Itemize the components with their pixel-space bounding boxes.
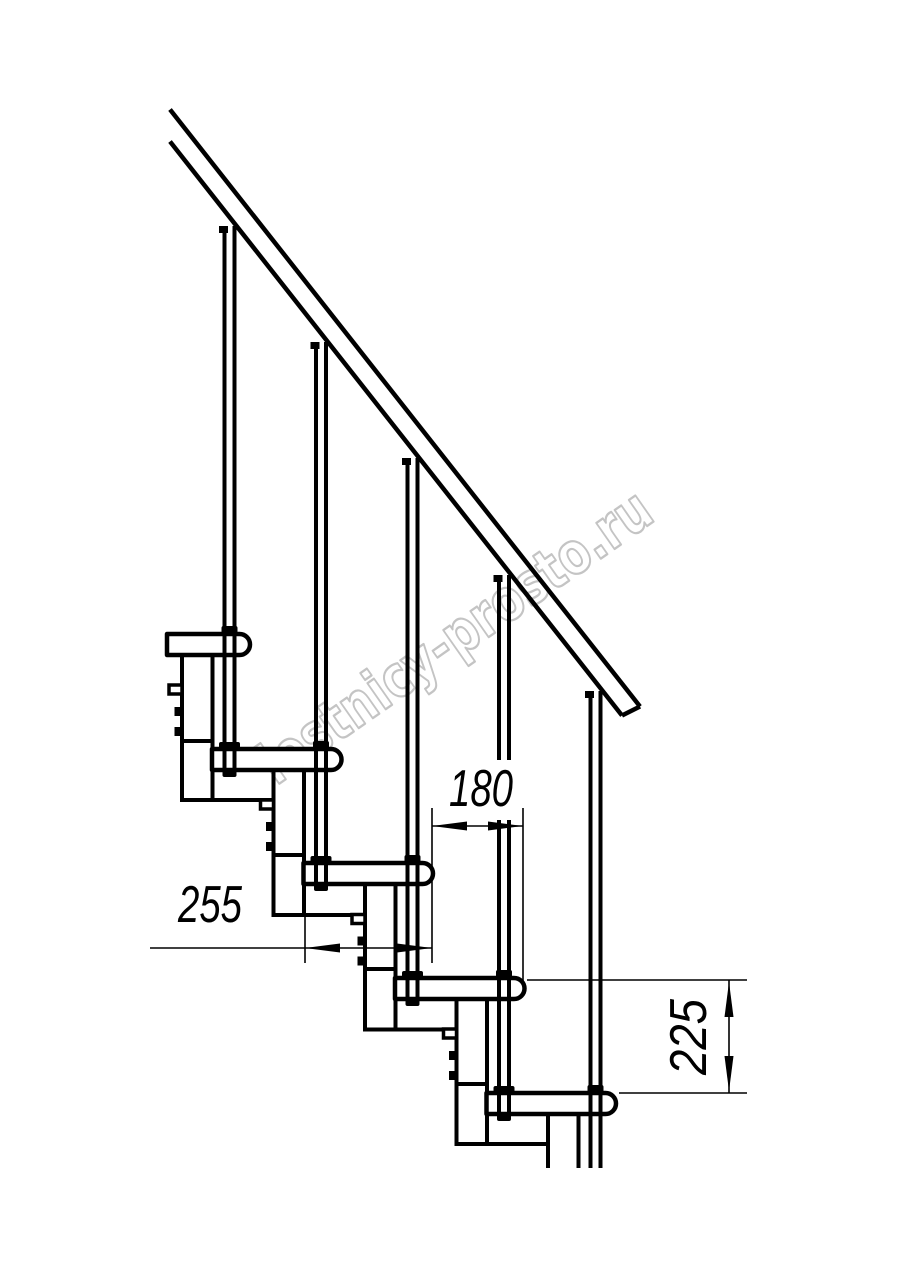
baluster-2 [311,342,332,891]
module-bolt [449,1071,457,1080]
arrowhead-left [432,822,467,831]
baluster-nut [223,770,237,777]
arrowhead-right [397,944,432,953]
tread-3 [304,863,434,884]
module-bolt [358,957,366,966]
module-bolt [266,822,274,831]
dimension-tread-depth-255: 255 [150,876,432,963]
baluster-foot-flange [311,856,332,864]
baluster-washer [313,741,329,750]
baluster-nut [406,999,420,1006]
module-bolt [175,727,183,736]
baluster-3 [402,458,423,1006]
baluster-nut [497,1114,511,1121]
arrowhead-down [725,1056,734,1091]
dim-label-going: 180 [449,760,513,818]
baluster-foot-flange [494,1086,515,1094]
handrail-end-cap [622,707,640,716]
module-bolt [175,707,183,716]
baluster-nut [314,884,328,891]
tread-4 [395,978,525,999]
arrowhead-right [488,822,523,831]
support-module-2 [261,770,366,915]
module-bracket-tab [352,915,365,924]
baluster-1 [219,226,240,777]
baluster-top-fitting [494,575,503,582]
dim-label-rise: 225 [660,998,718,1076]
support-module-1 [169,655,274,800]
baluster-foot-flange [402,971,423,979]
module-bolt [449,1051,457,1060]
baluster-top-fitting [402,458,411,465]
dimension-rise-225: 225 [527,980,747,1093]
handrail [170,110,640,716]
support-module-5 [548,1114,579,1168]
module-bracket-tab [444,1029,457,1038]
arrowhead-left [305,944,340,953]
module-bolt [358,937,366,946]
baluster-washer [222,626,238,635]
baluster-top-fitting [311,342,320,349]
tread-2 [212,749,342,770]
staircase-technical-drawing: lestnicy-prosto.ru [0,0,914,1280]
baluster-4 [494,575,515,1121]
baluster-washer [588,1085,604,1094]
drawing-page: lestnicy-prosto.ru [0,0,914,1280]
handrail-lower-edge [170,142,622,716]
baluster-top-fitting [219,226,228,233]
baluster-top-fitting [585,691,594,698]
arrowhead-up [725,982,734,1017]
module-bracket-tab [261,800,274,809]
handrail-upper-edge [170,110,640,707]
baluster-washer [405,855,421,864]
module-bracket-tab [169,685,182,694]
baluster-washer [496,970,512,979]
module-bolt [266,842,274,851]
tread-5 [487,1093,617,1114]
support-module-4 [444,999,549,1144]
baluster-foot-flange [219,742,240,750]
dim-label-tread-depth: 255 [177,876,243,934]
support-module-3 [352,884,457,1030]
tread-1 [167,634,250,655]
